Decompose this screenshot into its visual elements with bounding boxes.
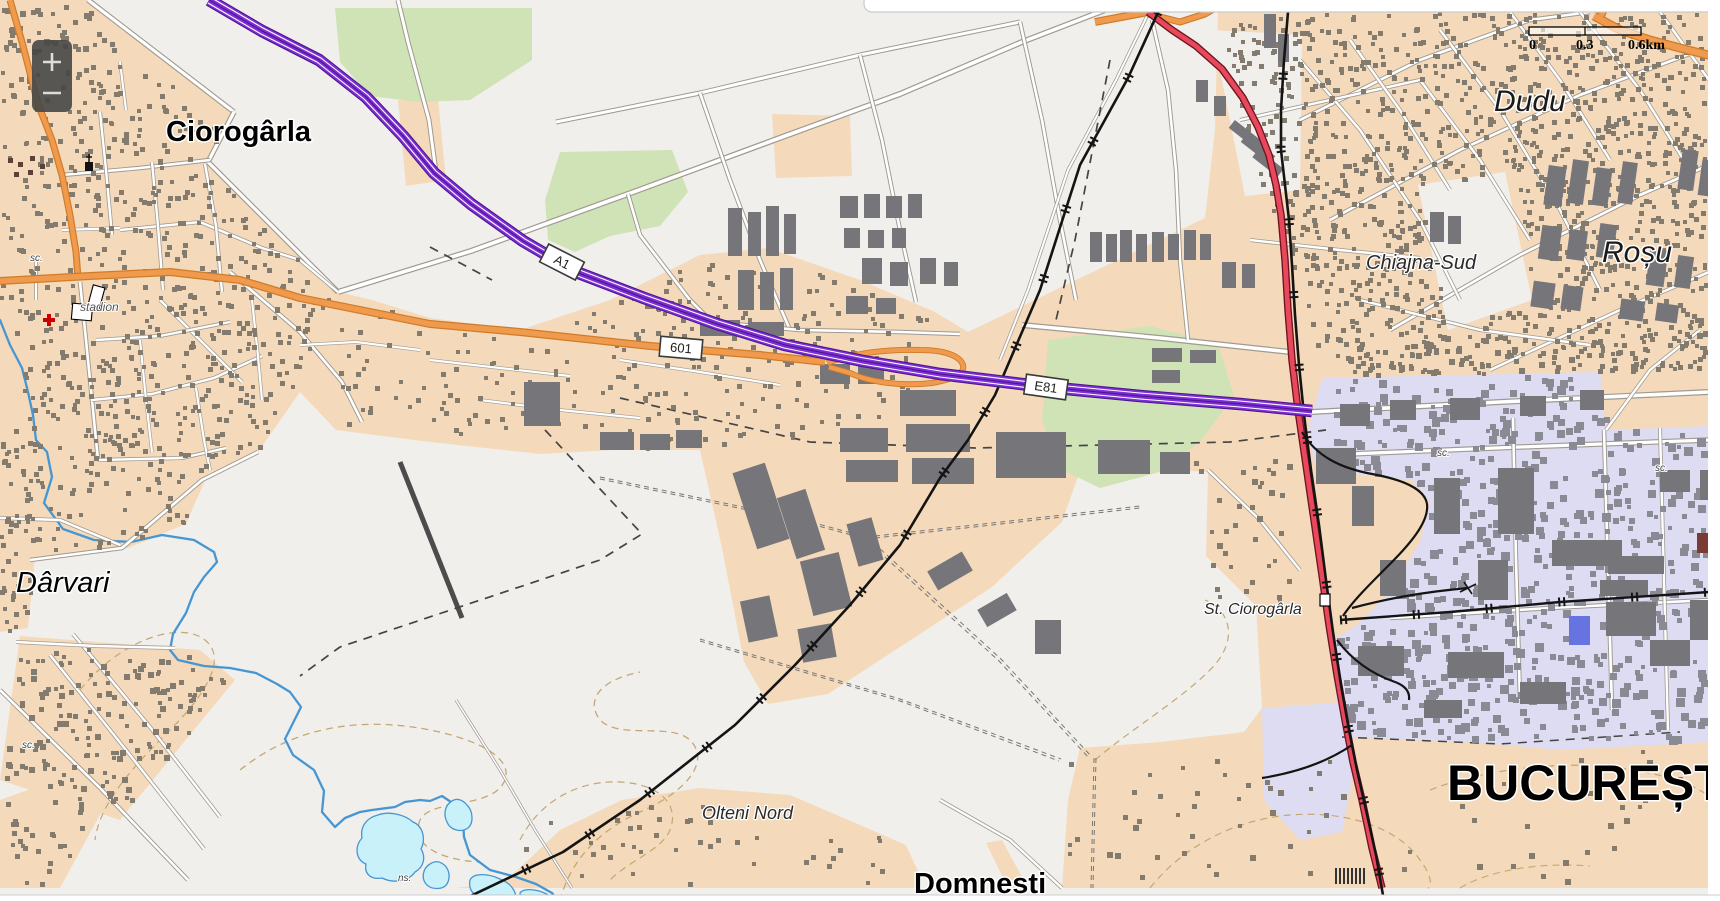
svg-text:sc.: sc.	[1655, 463, 1668, 474]
svg-text:sc.: sc.	[30, 253, 43, 264]
svg-text:0.3: 0.3	[1576, 38, 1594, 53]
svg-text:E81: E81	[1033, 378, 1058, 396]
svg-text:0.6km: 0.6km	[1628, 38, 1665, 53]
svg-text:601: 601	[670, 340, 693, 357]
svg-text:Chiajna-Sud: Chiajna-Sud	[1366, 252, 1477, 274]
svg-text:Dârvari: Dârvari	[16, 567, 111, 599]
svg-text:stadion: stadion	[80, 300, 119, 314]
svg-text:sc.: sc.	[1437, 448, 1450, 459]
svg-text:Ciorogârla: Ciorogârla	[166, 116, 312, 148]
svg-text:Dudu: Dudu	[1494, 85, 1566, 118]
svg-text:Roșu: Roșu	[1602, 236, 1672, 269]
svg-text:0: 0	[1529, 38, 1536, 53]
svg-text:ns.: ns.	[398, 873, 411, 884]
svg-text:St. Ciorogârla: St. Ciorogârla	[1204, 601, 1302, 618]
svg-text:Olteni Nord: Olteni Nord	[702, 803, 794, 823]
svg-text:sc.: sc.	[22, 740, 35, 751]
svg-text:BUCUREȘTI: BUCUREȘTI	[1447, 755, 1720, 811]
